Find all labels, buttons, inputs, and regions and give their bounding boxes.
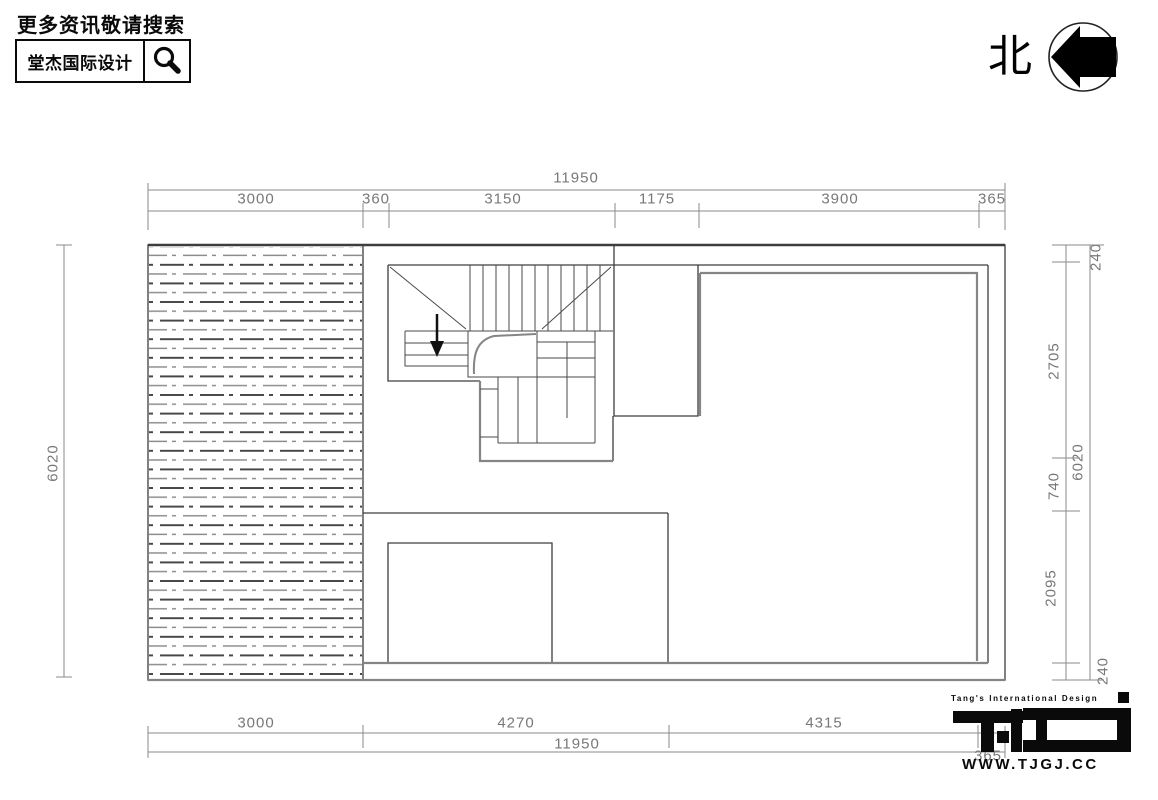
- plan-walls: [148, 245, 1005, 680]
- stair-down-arrow: [430, 314, 444, 357]
- staircase: [390, 265, 613, 443]
- dim-top-3150: 3150: [484, 191, 521, 208]
- dim-top-365: 365: [978, 191, 1006, 208]
- magnifier-icon: [145, 41, 189, 81]
- blueprint-page: { "header": { "search_hint": "更多资讯敬请搜索",…: [0, 0, 1158, 800]
- floor-plan-drawing: [0, 0, 1158, 800]
- dim-bottom-3000: 3000: [237, 715, 274, 732]
- inner-room-outline: [148, 273, 1005, 680]
- dim-right-2095: 2095: [1043, 569, 1060, 606]
- dim-top-3900: 3900: [821, 191, 858, 208]
- brand-name-text: 堂杰国际设计: [17, 41, 143, 81]
- north-label: 北: [988, 18, 1032, 96]
- dim-right-total: 6020: [1070, 443, 1087, 480]
- dim-top-360: 360: [362, 191, 390, 208]
- dim-bottom-4315: 4315: [805, 715, 842, 732]
- dimension-lines: [56, 183, 1104, 758]
- dim-right-240a: 240: [1088, 243, 1105, 271]
- dim-right-740: 740: [1046, 472, 1063, 500]
- footer-brand-text: Tang's International Design: [951, 694, 1117, 703]
- footer-website-link[interactable]: WWW.TJGJ.CC: [962, 756, 1099, 773]
- dim-right-240b: 240: [1095, 657, 1112, 685]
- dim-left-total: 6020: [45, 444, 62, 481]
- dim-top-1175: 1175: [639, 191, 675, 208]
- north-arrow-icon: [1046, 20, 1120, 94]
- brand-logo-box: 堂杰国际设计: [15, 39, 191, 83]
- footer-brand-square: [1118, 692, 1129, 703]
- tjgj-logo-mark: [948, 703, 1134, 763]
- roof-hatch-area: [149, 247, 362, 678]
- dim-right-2705: 2705: [1046, 342, 1063, 379]
- search-hint-text: 更多资讯敬请搜索: [17, 9, 185, 38]
- dim-bottom-4270: 4270: [497, 715, 534, 732]
- dim-bottom-total: 11950: [554, 736, 600, 753]
- dim-top-3000: 3000: [237, 191, 274, 208]
- north-indicator: 北: [988, 18, 1120, 96]
- dim-top-total: 11950: [553, 170, 599, 187]
